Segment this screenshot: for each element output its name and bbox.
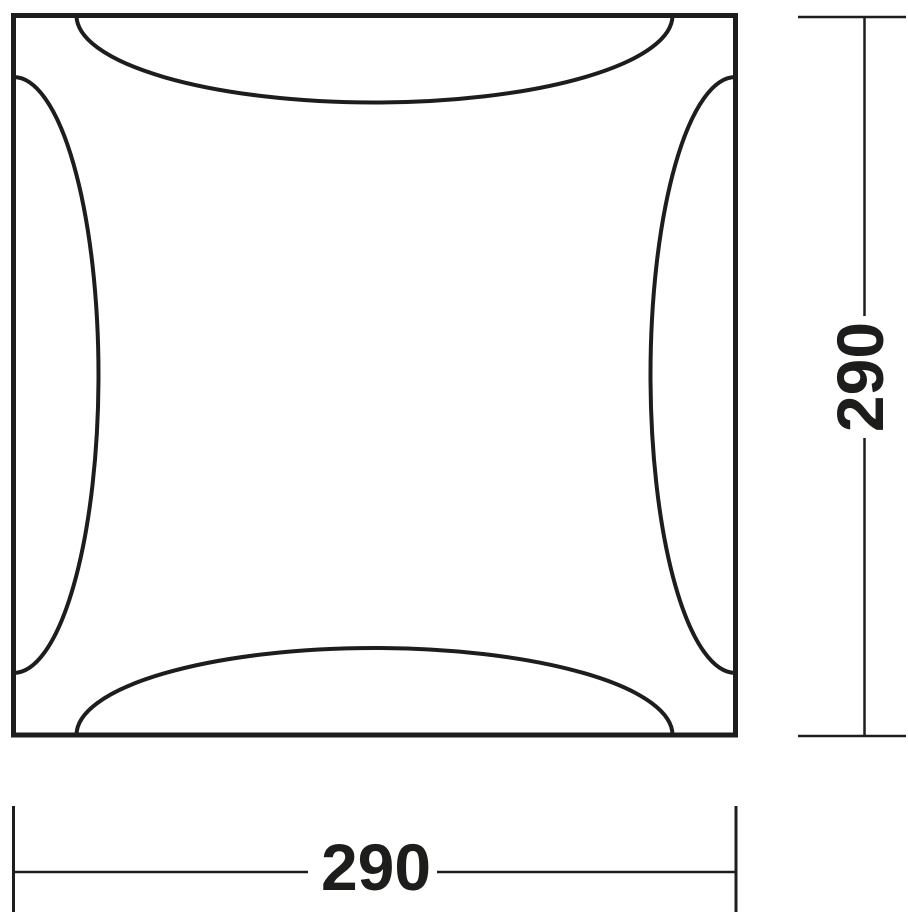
top-fabric-curve xyxy=(77,16,673,103)
right-fabric-curve xyxy=(651,77,736,673)
width-dimension-label: 290 xyxy=(321,834,431,900)
footprint-outline xyxy=(14,16,736,736)
footprint-dimension-diagram: 290 290 xyxy=(0,0,908,915)
height-dimension-label: 290 xyxy=(827,322,893,432)
bottom-fabric-curve xyxy=(77,648,673,735)
diagram-drawing xyxy=(0,0,908,915)
left-fabric-curve xyxy=(14,77,99,673)
